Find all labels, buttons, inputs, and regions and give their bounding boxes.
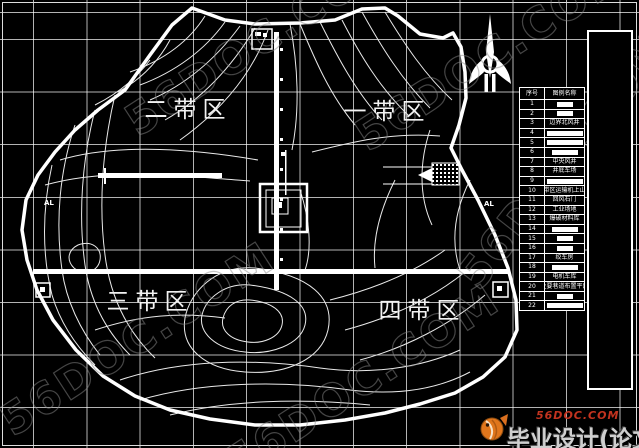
- legend-symbol-swatch: [545, 292, 584, 301]
- legend-row-number: 10: [520, 186, 545, 195]
- legend-row: 12工业场地: [520, 205, 584, 215]
- zone-label-1: 一带区: [344, 92, 431, 126]
- legend-row: 15: [520, 233, 584, 243]
- logo-site-name[interactable]: 毕业设计(论文)网: [507, 420, 639, 448]
- legend-row-number: 21: [520, 292, 545, 301]
- legend-row-label: 电机车库: [545, 273, 584, 282]
- legend-row-label: 爆破材料库: [545, 215, 584, 224]
- legend-row-number: 13: [520, 215, 545, 224]
- legend-row-number: 12: [520, 206, 545, 215]
- legend-row-label: 井底车场: [545, 167, 584, 176]
- zone-label-2: 二带区: [145, 90, 232, 124]
- legend-row-number: 7: [520, 158, 545, 167]
- legend-row-number: 22: [520, 301, 545, 310]
- legend-row: 22: [520, 300, 584, 310]
- legend-row: 11回风石门: [520, 195, 584, 205]
- legend-row: 19电机车库: [520, 272, 584, 282]
- legend-row: 20主要巷道布置平面: [520, 281, 584, 291]
- legend-row: 10带区运输机上山: [520, 185, 584, 195]
- legend-symbol-swatch: [545, 244, 584, 253]
- legend-row-number: 9: [520, 177, 545, 186]
- left-road: [98, 168, 222, 184]
- legend-row: 9: [520, 176, 584, 186]
- legend-row-number: 8: [520, 167, 545, 176]
- legend-header: 序号 图例名称: [520, 88, 584, 99]
- contour-line: [45, 165, 96, 365]
- contour-line: [60, 149, 258, 160]
- legend-symbol-swatch: [545, 100, 584, 109]
- zone-label-4: 四带区: [379, 291, 466, 325]
- legend-row-number: 6: [520, 148, 545, 157]
- contour-line: [69, 243, 100, 272]
- legend-row-label: 工业场地: [545, 206, 584, 215]
- legend-header-no: 序号: [520, 88, 545, 99]
- main-shaft-line: [274, 32, 287, 290]
- legend-row-label: 回风石门: [545, 196, 584, 205]
- legend-symbol-swatch: [545, 225, 584, 234]
- legend-row: 7中央风井: [520, 157, 584, 167]
- legend-row-label: 绞车房: [545, 254, 584, 263]
- legend-row: 17绞车房: [520, 253, 584, 263]
- legend-row-label: 带区运输机上山: [545, 186, 584, 195]
- legend-symbol-swatch: [545, 148, 584, 157]
- legend-symbol-swatch: [545, 177, 584, 186]
- legend-symbol-swatch: [545, 138, 584, 147]
- legend-symbol-swatch: [545, 110, 584, 119]
- legend-row: 5: [520, 137, 584, 147]
- legend-row-number: 18: [520, 263, 545, 272]
- legend-row-number: 5: [520, 138, 545, 147]
- legend-row-number: 4: [520, 129, 545, 138]
- legend-symbol-swatch: [545, 301, 584, 310]
- legend-row-number: 15: [520, 234, 545, 243]
- legend-row: 8井底车场: [520, 166, 584, 176]
- legend-row: 6: [520, 147, 584, 157]
- boundary-marker-right: AL: [484, 200, 494, 208]
- legend-row: 16: [520, 243, 584, 253]
- legend-row-number: 19: [520, 273, 545, 282]
- legend-row: 2: [520, 109, 584, 119]
- legend-table: 序号 图例名称 123边界北风井4567中央风井8井底车场910带区运输机上山1…: [519, 87, 585, 311]
- legend-row-number: 1: [520, 100, 545, 109]
- legend-row-label: 边界北风井: [545, 119, 584, 128]
- legend-row-number: 2: [520, 110, 545, 119]
- legend-row: 1: [520, 99, 584, 109]
- boundary-marker-left: AL: [44, 199, 54, 207]
- legend-row: 14: [520, 224, 584, 234]
- airflow-arrow-icon: [418, 168, 432, 182]
- fish-icon: [478, 412, 508, 444]
- legend-row-label: 主要巷道布置平面: [545, 282, 584, 291]
- legend-row: 3边界北风井: [520, 118, 584, 128]
- legend-row-number: 3: [520, 119, 545, 128]
- legend-row-number: 17: [520, 254, 545, 263]
- contour-line: [59, 125, 100, 355]
- contour-line: [374, 180, 395, 268]
- legend-row-number: 16: [520, 244, 545, 253]
- legend-row: 4: [520, 128, 584, 138]
- cad-drawing-sheet: 56DOC.COM56DOC.COM56DOC.COM56DOC.COM56DO…: [0, 0, 639, 448]
- legend-row-label: 中央风井: [545, 158, 584, 167]
- legend-symbol-swatch: [545, 129, 584, 138]
- legend-row-number: 14: [520, 225, 545, 234]
- legend-row: 21: [520, 291, 584, 301]
- legend-row-number: 20: [520, 282, 545, 291]
- legend-row: 13爆破材料库: [520, 214, 584, 224]
- title-block-frame: [587, 30, 633, 390]
- zone-label-3: 三带区: [107, 282, 194, 316]
- legend-row-number: 11: [520, 196, 545, 205]
- site-logo[interactable]: 56DOC.COM 毕业设计(论文)网: [478, 408, 639, 448]
- legend-symbol-swatch: [545, 234, 584, 243]
- legend-row: 18: [520, 262, 584, 272]
- legend-header-name: 图例名称: [545, 88, 584, 99]
- legend-symbol-swatch: [545, 263, 584, 272]
